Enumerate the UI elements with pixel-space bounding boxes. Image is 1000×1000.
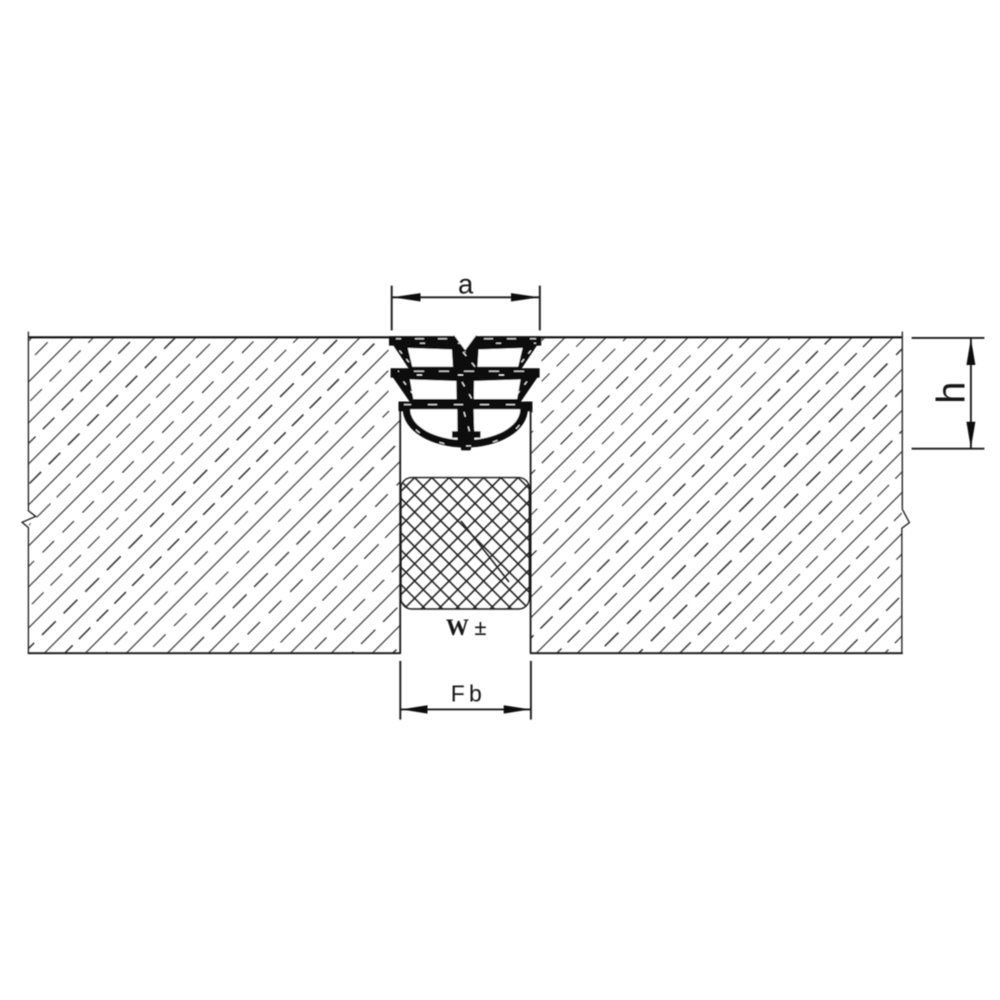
svg-text:Fb: Fb [451, 680, 486, 706]
svg-text:h: h [930, 381, 974, 403]
svg-text:a: a [458, 268, 474, 299]
svg-text:W ±: W ± [446, 615, 487, 640]
